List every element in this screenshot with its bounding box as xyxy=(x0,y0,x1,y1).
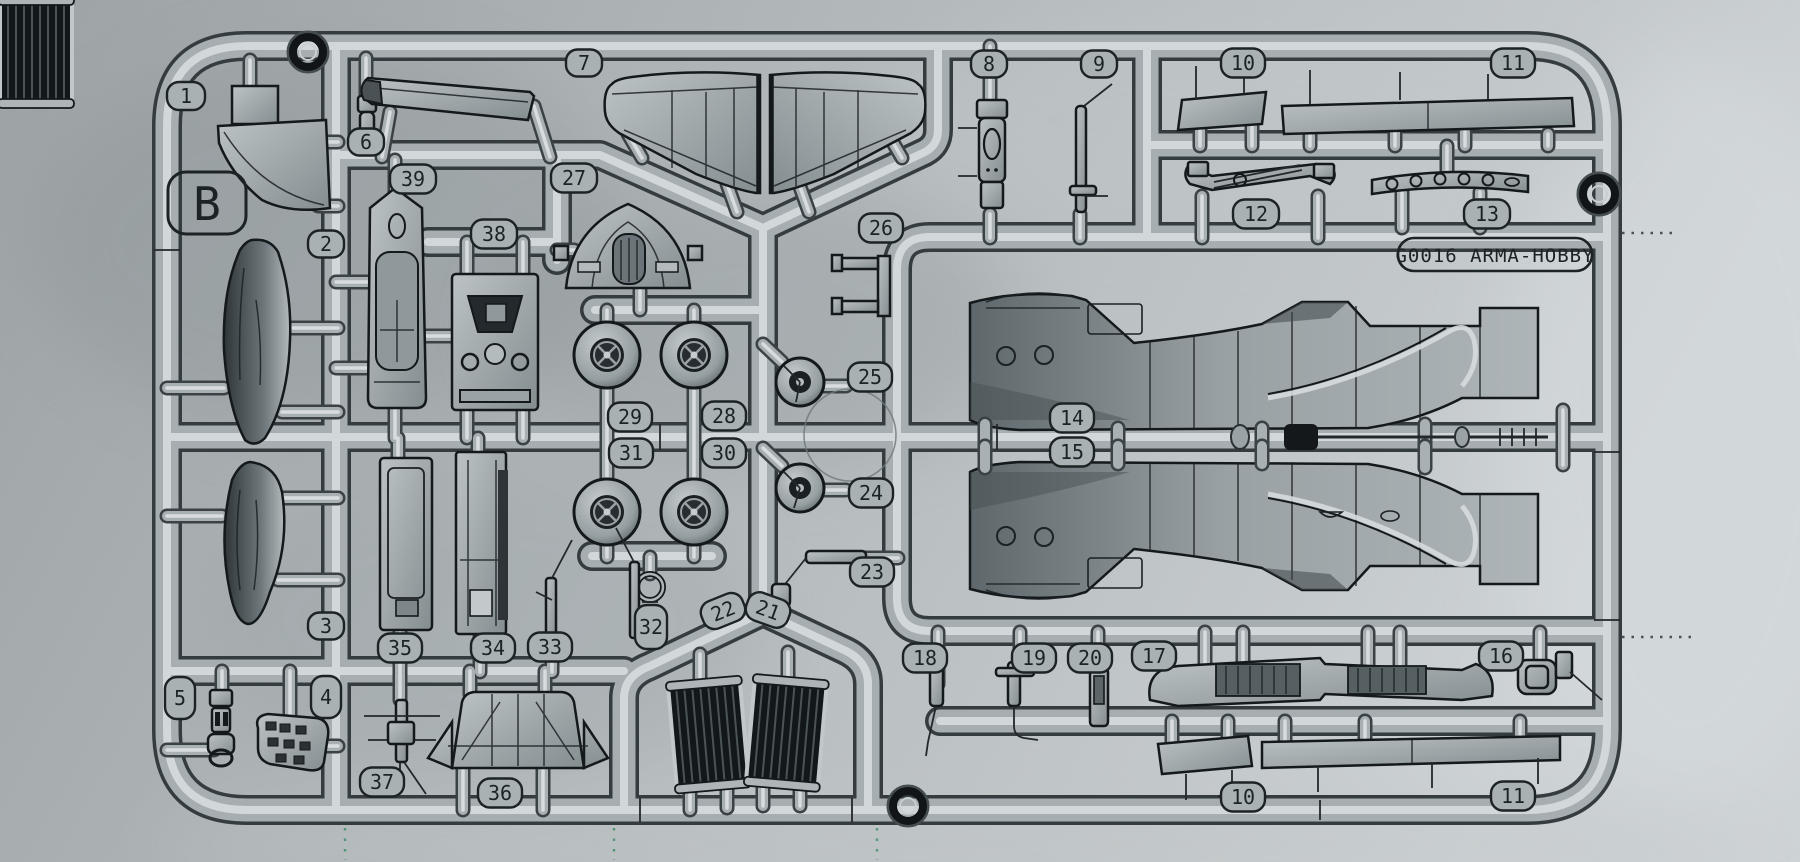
part-tag: 23 xyxy=(850,558,894,587)
svg-text:18: 18 xyxy=(913,646,937,670)
part-panel-34 xyxy=(456,452,508,634)
part-tag: 11 xyxy=(1491,49,1535,78)
part-tag: 35 xyxy=(378,634,422,663)
svg-text:30: 30 xyxy=(712,441,736,465)
svg-text:36: 36 xyxy=(488,781,512,805)
part-radiator-left xyxy=(666,676,751,794)
part-tag: 11 xyxy=(1491,782,1535,811)
part-wheel-28 xyxy=(661,322,727,388)
svg-text:13: 13 xyxy=(1475,202,1499,226)
svg-text:24: 24 xyxy=(859,481,883,505)
svg-text:38: 38 xyxy=(482,222,506,246)
svg-text:19: 19 xyxy=(1022,646,1046,670)
sprue-render: B xyxy=(0,0,1800,862)
part-tag: 14 xyxy=(1050,404,1094,433)
part-wheel-31 xyxy=(574,479,640,545)
svg-text:11: 11 xyxy=(1501,51,1525,75)
part-tag: 27 xyxy=(551,164,597,193)
part-tag: 25 xyxy=(848,363,892,392)
part-tag: 4 xyxy=(311,676,341,718)
svg-text:4: 4 xyxy=(320,685,332,709)
svg-text:20: 20 xyxy=(1078,646,1102,670)
svg-text:10: 10 xyxy=(1231,51,1255,75)
part-tag: 1 xyxy=(167,82,205,110)
part-tag: 7 xyxy=(566,50,602,77)
svg-text:25: 25 xyxy=(858,365,882,389)
part-tag: 9 xyxy=(1081,51,1117,78)
svg-text:33: 33 xyxy=(538,635,562,659)
sprue-photo: B xyxy=(0,0,1800,862)
part-tag: 38 xyxy=(471,220,517,249)
svg-text:27: 27 xyxy=(562,166,586,190)
svg-text:37: 37 xyxy=(370,770,394,794)
part-tag: 6 xyxy=(348,129,384,156)
svg-text:23: 23 xyxy=(860,560,884,584)
svg-text:3: 3 xyxy=(320,614,332,638)
svg-text:5: 5 xyxy=(174,686,186,710)
part-tag: 8 xyxy=(971,51,1007,78)
part-tag: 29 xyxy=(608,403,652,432)
part-tag: 2 xyxy=(308,231,344,258)
part-wheel-30 xyxy=(661,479,727,545)
svg-text:32: 32 xyxy=(639,615,663,639)
svg-text:31: 31 xyxy=(619,441,643,465)
part-tag: 24 xyxy=(849,479,893,508)
svg-text:1: 1 xyxy=(180,84,192,108)
brand-label-text: G0016 ARMA-HOBBY xyxy=(1395,245,1594,267)
part-tag: 32 xyxy=(635,605,667,649)
svg-text:35: 35 xyxy=(388,636,412,660)
part-tag: 3 xyxy=(308,613,344,640)
part-radiator xyxy=(0,0,74,108)
part-tag: 13 xyxy=(1464,200,1510,229)
svg-text:6: 6 xyxy=(360,130,372,154)
part-tag: 15 xyxy=(1050,438,1094,467)
svg-text:15: 15 xyxy=(1060,440,1084,464)
part-tag: 33 xyxy=(528,633,572,662)
svg-text:16: 16 xyxy=(1489,644,1513,668)
part-tag: 36 xyxy=(478,779,522,808)
part-tag: 19 xyxy=(1012,644,1056,673)
part-small-5 xyxy=(208,690,234,766)
svg-text:17: 17 xyxy=(1142,644,1166,668)
part-tag: 10 xyxy=(1221,783,1265,812)
part-tag: 37 xyxy=(360,768,404,797)
svg-text:28: 28 xyxy=(712,404,736,428)
part-tag: 34 xyxy=(471,634,515,663)
part-tag: 20 xyxy=(1068,644,1112,673)
svg-text:8: 8 xyxy=(983,52,995,76)
svg-text:11: 11 xyxy=(1501,784,1525,808)
svg-text:29: 29 xyxy=(618,405,642,429)
part-engine-mount xyxy=(452,274,538,410)
part-tag: 39 xyxy=(390,165,436,194)
svg-text:10: 10 xyxy=(1231,785,1255,809)
runner-letter: B xyxy=(193,177,221,231)
part-cockpit-floor xyxy=(368,188,426,408)
part-tag: 17 xyxy=(1132,642,1176,671)
part-link-20 xyxy=(1090,668,1108,726)
part-small-4 xyxy=(257,714,328,770)
svg-text:7: 7 xyxy=(578,51,590,75)
part-wheel-29 xyxy=(574,322,640,388)
svg-text:34: 34 xyxy=(481,636,505,660)
svg-text:2: 2 xyxy=(320,232,332,256)
part-tag: 31 xyxy=(609,439,653,468)
part-tag: 26 xyxy=(859,214,903,243)
part-tag: 5 xyxy=(165,677,195,719)
svg-text:26: 26 xyxy=(869,216,893,240)
part-tailwheel-25 xyxy=(776,358,824,406)
part-radiator-right xyxy=(744,674,829,792)
svg-text:14: 14 xyxy=(1060,406,1084,430)
svg-text:9: 9 xyxy=(1093,52,1105,76)
part-tag: 28 xyxy=(702,402,746,431)
svg-text:12: 12 xyxy=(1244,202,1268,226)
part-tag: 30 xyxy=(702,439,746,468)
svg-text:39: 39 xyxy=(401,167,425,191)
part-tag: 12 xyxy=(1233,200,1279,229)
part-panel-35 xyxy=(380,458,432,630)
part-tag: 18 xyxy=(903,644,947,673)
part-tag: 10 xyxy=(1221,49,1265,78)
part-tailwheel-24 xyxy=(776,464,824,512)
part-tag: 16 xyxy=(1479,642,1523,671)
